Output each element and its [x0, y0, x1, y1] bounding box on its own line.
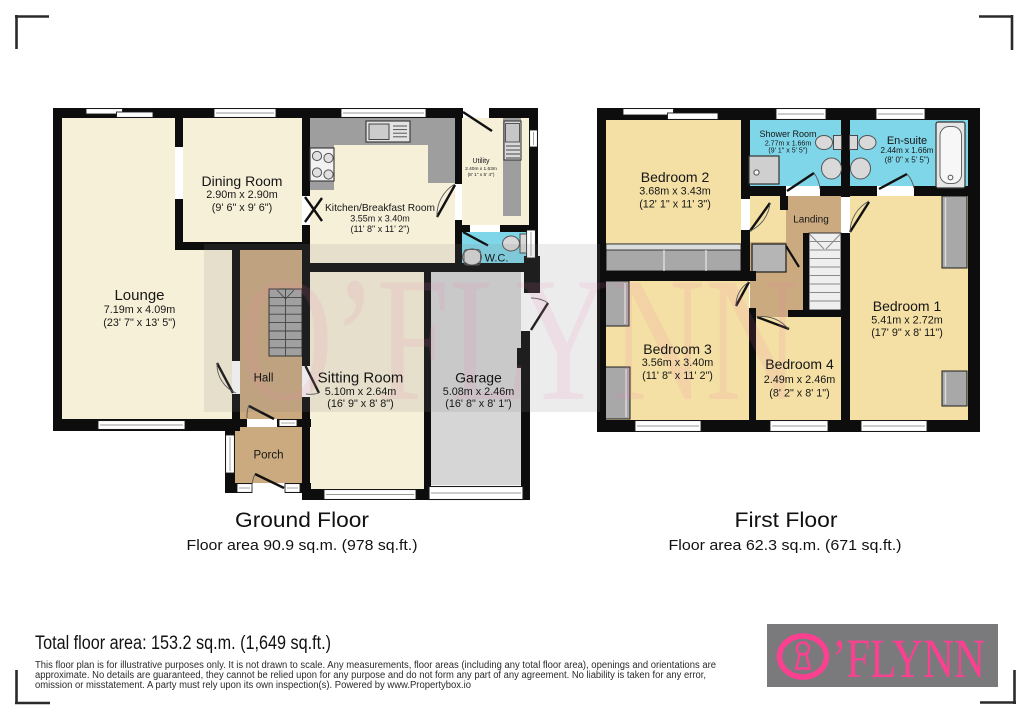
svg-text:7.19m x 4.09m: 7.19m x 4.09m: [104, 304, 175, 316]
svg-text:(8' 2" x 8' 1"): (8' 2" x 8' 1"): [769, 388, 829, 400]
svg-text:Bedroom 4: Bedroom 4: [765, 356, 834, 372]
svg-text:2.49m x 2.46m: 2.49m x 2.46m: [764, 374, 835, 386]
svg-text:Ground Floor: Ground Floor: [235, 509, 369, 532]
svg-text:Kitchen/Breakfast Room: Kitchen/Breakfast Room: [325, 202, 435, 214]
svg-text:2.44m x 1.66m: 2.44m x 1.66m: [881, 146, 934, 155]
svg-text:Bedroom 1: Bedroom 1: [873, 298, 942, 314]
svg-text:3.68m x 3.43m: 3.68m x 3.43m: [639, 186, 710, 198]
svg-text:Hall: Hall: [254, 373, 274, 385]
svg-text:3.56m x 3.40m: 3.56m x 3.40m: [642, 357, 713, 369]
svg-text:Shower Room: Shower Room: [759, 129, 816, 139]
svg-text:Porch: Porch: [253, 450, 283, 462]
svg-text:Bedroom 3: Bedroom 3: [643, 341, 712, 357]
svg-text:omission or misstatement. A pa: omission or misstatement. A party must r…: [35, 680, 472, 691]
svg-text:3.55m x 3.40m: 3.55m x 3.40m: [350, 214, 410, 224]
svg-text:O’FLYNN: O’FLYNN: [239, 240, 800, 438]
svg-text:5.10m x 2.64m: 5.10m x 2.64m: [325, 386, 396, 398]
svg-text:(8' 1" x 5' 4"): (8' 1" x 5' 4"): [468, 172, 495, 178]
svg-text:(9' 1" x 5' 5"): (9' 1" x 5' 5"): [768, 148, 807, 155]
svg-text:5.41m x 2.72m: 5.41m x 2.72m: [871, 315, 942, 327]
svg-text:Landing: Landing: [793, 214, 829, 225]
svg-text:Sitting Room: Sitting Room: [318, 370, 404, 387]
svg-text:W.C.: W.C.: [485, 253, 509, 265]
svg-text:Floor area 90.9 sq.m. (978 sq.: Floor area 90.9 sq.m. (978 sq.ft.): [187, 537, 418, 554]
svg-text:Garage: Garage: [455, 370, 502, 386]
svg-text:2.90m x 2.90m: 2.90m x 2.90m: [206, 189, 277, 201]
svg-text:Dining Room: Dining Room: [202, 173, 283, 189]
svg-text:Utility: Utility: [472, 158, 490, 165]
svg-text:Lounge: Lounge: [114, 287, 164, 304]
svg-text:(12' 1" x 11' 3"): (12' 1" x 11' 3"): [639, 199, 711, 211]
svg-text:Bedroom 2: Bedroom 2: [641, 169, 710, 185]
svg-text:(17' 9" x 8' 11"): (17' 9" x 8' 11"): [871, 327, 943, 339]
svg-text:(9' 6" x 9' 6"): (9' 6" x 9' 6"): [212, 202, 272, 214]
svg-text:5.08m x 2.46m: 5.08m x 2.46m: [443, 386, 514, 398]
svg-text:Total floor area: 153.2 sq.m.: Total floor area: 153.2 sq.m. (1,649 sq.…: [35, 633, 331, 654]
svg-text:First Floor: First Floor: [735, 509, 838, 532]
svg-text:2.77m x 1.66m: 2.77m x 1.66m: [765, 141, 811, 148]
svg-text:(8' 0" x 5' 5"): (8' 0" x 5' 5"): [885, 156, 930, 165]
svg-text:(11' 8" x 11' 2"): (11' 8" x 11' 2"): [642, 370, 713, 382]
svg-text:(16' 8" x 8' 1"): (16' 8" x 8' 1"): [445, 398, 511, 410]
svg-text:Floor area 62.3 sq.m. (671 sq.: Floor area 62.3 sq.m. (671 sq.ft.): [669, 537, 902, 554]
svg-text:(23' 7" x 13' 5"): (23' 7" x 13' 5"): [103, 317, 175, 329]
svg-text:’FLYNN: ’FLYNN: [832, 628, 985, 689]
svg-text:2.40m x 1.63m: 2.40m x 1.63m: [465, 166, 497, 172]
svg-text:(11' 8" x 11' 2"): (11' 8" x 11' 2"): [350, 224, 409, 234]
svg-text:(16' 9" x 8' 8"): (16' 9" x 8' 8"): [327, 398, 393, 410]
